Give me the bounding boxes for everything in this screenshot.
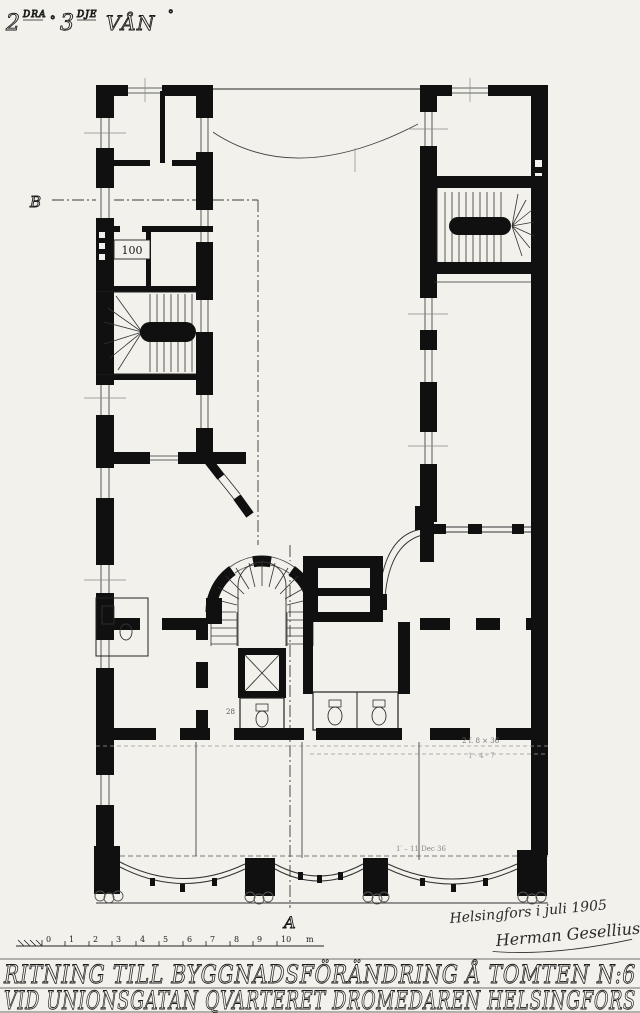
street-facade: 1′ – 11 Dec 36 — [94, 845, 548, 904]
toilet-fixture — [328, 707, 342, 725]
main-stair — [206, 557, 313, 646]
scale-tick: 10 — [281, 935, 291, 944]
toilet-fixture — [372, 707, 386, 725]
scale-tick: 5 — [163, 935, 168, 944]
drawing-sheet: 2 DRA ° 3 DJE VÅN ° B A — [0, 0, 640, 1013]
title-floor-3: 3 — [60, 11, 75, 36]
dimension-note: 1 · 4 · 7 — [468, 752, 495, 760]
toilet-fixture — [256, 711, 268, 727]
scale-tick: 2 — [93, 935, 98, 944]
hanging-curve — [207, 124, 418, 158]
scale-tick: 6 — [187, 935, 192, 944]
signature-name: Herman Gesellius — [494, 919, 640, 951]
scale-tick: 3 — [116, 935, 121, 944]
title-degree: ° — [168, 8, 175, 21]
scale-tick: 4 — [140, 935, 145, 944]
title-floor-3-suffix: DJE — [76, 10, 97, 20]
scale-tick: 1 — [69, 935, 74, 944]
caption: RITNING TILL BYGGNADSFÖRÄNDRING Å TOMTEN… — [0, 959, 640, 1013]
drawing-title: 2 DRA ° 3 DJE VÅN ° — [5, 8, 175, 36]
scale-unit: m — [306, 935, 314, 944]
signature-block: Helsingfors i juli 1905 Herman Gesellius — [448, 895, 640, 960]
wc-number: 28 — [226, 708, 235, 716]
scale-tick: 7 — [210, 935, 215, 944]
scale-tick: 9 — [257, 935, 262, 944]
caption-line-1: RITNING TILL BYGGNADSFÖRÄNDRING Å TOMTEN… — [3, 959, 636, 989]
right-stair — [445, 192, 534, 262]
section-marker-b: B — [29, 193, 42, 211]
courtyard — [207, 89, 420, 158]
caption-line-2: VID UNIONSGATAN QVARTERET DROMEDAREN HEL… — [4, 986, 636, 1013]
wc-room: 28 — [226, 698, 284, 732]
elevator-shaft — [238, 648, 286, 698]
section-marker-a: A — [282, 913, 297, 932]
bathrooms — [313, 692, 398, 730]
title-floor-word: VÅN — [106, 10, 156, 35]
radiator-label: 100 — [122, 244, 143, 257]
light-shaft — [303, 556, 383, 622]
title-separator: ° — [50, 14, 57, 27]
scale-tick: 0 — [46, 935, 51, 944]
title-floor-2: 2 — [5, 11, 21, 36]
title-floor-2-suffix: DRA — [22, 10, 47, 20]
scale-bar: 0 1 2 3 4 5 6 7 8 9 10 m — [16, 935, 324, 946]
dimension-note: 2 f. 8 × 36 — [462, 737, 500, 745]
curved-corner-right — [371, 506, 531, 610]
facade-note: 1′ – 11 Dec 36 — [396, 845, 446, 853]
scale-tick: 8 — [234, 935, 239, 944]
floor-plan-drawing: 2 DRA ° 3 DJE VÅN ° B A — [0, 0, 640, 1013]
